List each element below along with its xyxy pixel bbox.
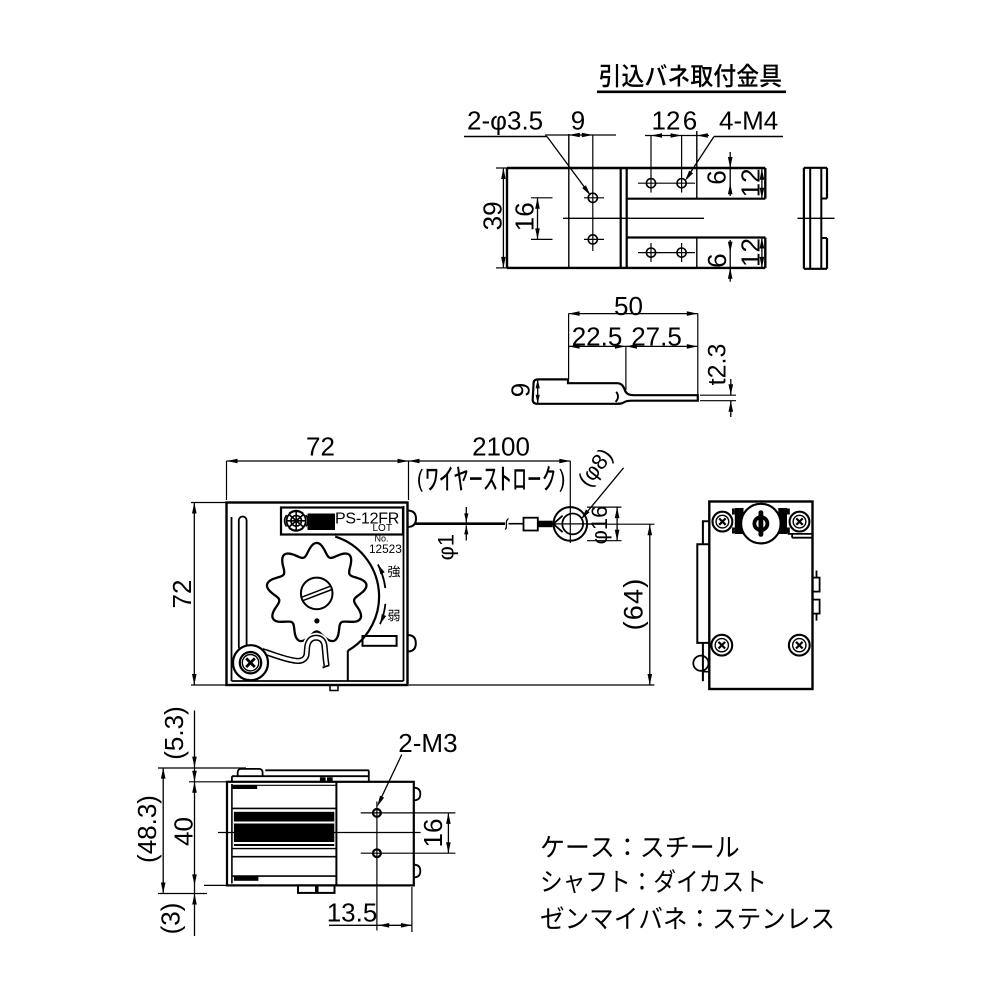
svg-text:13.5: 13.5 bbox=[327, 898, 378, 928]
svg-text:16: 16 bbox=[510, 202, 540, 231]
svg-text:(64): (64) bbox=[619, 578, 649, 631]
svg-text:(48.3): (48.3) bbox=[132, 795, 162, 863]
svg-text:72: 72 bbox=[306, 431, 335, 461]
svg-text:12: 12 bbox=[736, 238, 766, 267]
svg-text:16: 16 bbox=[418, 819, 448, 848]
svg-text:t2.3: t2.3 bbox=[703, 344, 731, 386]
svg-text:2-φ3.5: 2-φ3.5 bbox=[467, 106, 543, 136]
svg-text:6: 6 bbox=[683, 106, 697, 136]
svg-text:(5.3): (5.3) bbox=[159, 706, 189, 759]
svg-text:40: 40 bbox=[169, 817, 199, 846]
svg-text:72: 72 bbox=[167, 580, 197, 609]
svg-text:φ1: φ1 bbox=[434, 534, 459, 561]
svg-text:9: 9 bbox=[505, 383, 535, 397]
svg-text:6: 6 bbox=[702, 253, 732, 267]
svg-text:12: 12 bbox=[652, 106, 681, 136]
svg-text:2100: 2100 bbox=[472, 431, 530, 461]
svg-text:39: 39 bbox=[477, 201, 507, 230]
svg-text:φ16: φ16 bbox=[587, 506, 612, 545]
svg-text:50: 50 bbox=[614, 291, 643, 321]
svg-text:9: 9 bbox=[571, 106, 585, 136]
svg-text:4-M4: 4-M4 bbox=[719, 106, 778, 136]
svg-text:(3): (3) bbox=[155, 903, 185, 935]
svg-text:2-M3: 2-M3 bbox=[398, 728, 457, 758]
svg-text:6: 6 bbox=[701, 170, 731, 184]
svg-text:12523: 12523 bbox=[369, 542, 402, 556]
svg-text:12: 12 bbox=[735, 168, 765, 197]
